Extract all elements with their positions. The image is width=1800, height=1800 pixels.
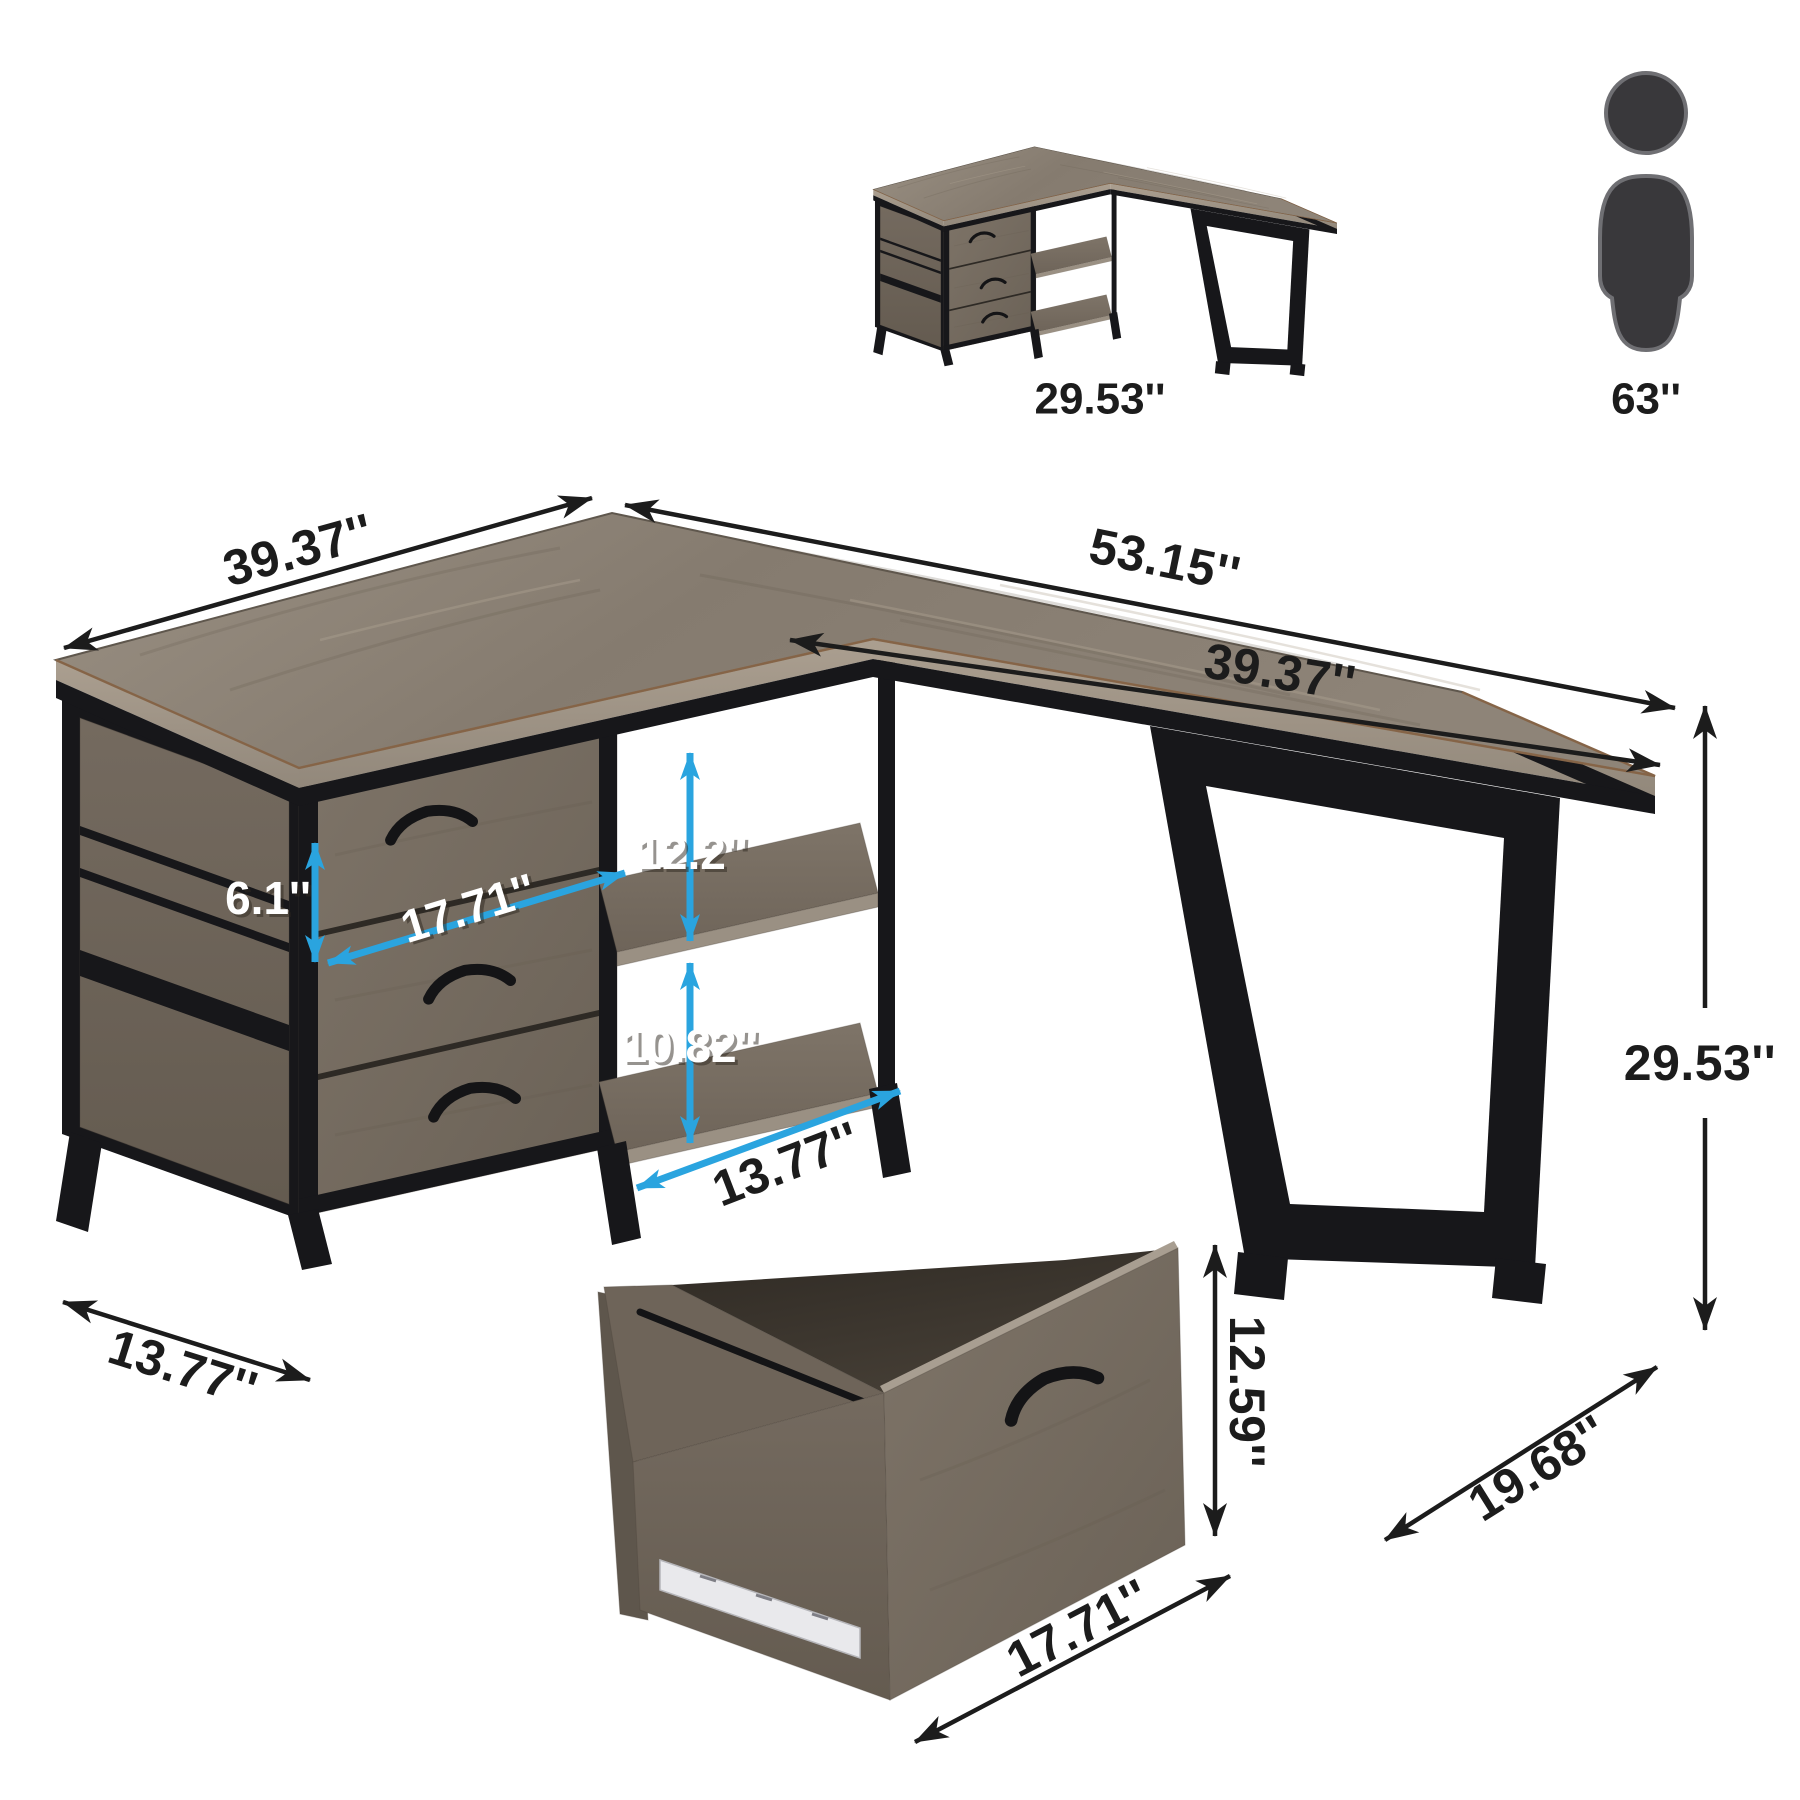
- thumbnail-desk-height-label: 29.53'': [1034, 375, 1165, 424]
- dim-label-leg-depth: 19.68'': [1459, 1404, 1618, 1532]
- dim-label-total-length: 53.15'': [1085, 517, 1246, 602]
- product-dimension-diagram: 29.53'' 63'' 39.37'' 53.15'' 39.37'': [0, 0, 1800, 1800]
- dim-label-top-drawer-height-group: 6.1'' 6.1'': [225, 872, 314, 927]
- person-height-label: 63'': [1611, 375, 1681, 424]
- dim-label-upper-shelf-clearance-group: 12.2'' 12.2'': [636, 827, 750, 882]
- diagram-canvas: 29.53'' 63'' 39.37'' 53.15'' 39.37'': [0, 0, 1800, 1800]
- person-body: [1600, 176, 1692, 350]
- desk-thumbnail: [873, 147, 1337, 376]
- person-icon: [1600, 73, 1692, 350]
- dim-label-upper-shelf-clearance: 12.2'': [636, 827, 747, 879]
- dim-label-lower-shelf-clearance: 10.82'': [622, 1020, 759, 1072]
- person-head: [1606, 73, 1686, 153]
- dim-label-desk-height: 29.53'': [1624, 1035, 1776, 1091]
- dim-label-cabinet-floor-depth: 13.77'': [102, 1318, 264, 1417]
- dim-label-top-drawer-height: 6.1'': [225, 872, 311, 924]
- dim-label-lower-shelf-clearance-group: 10.82'' 10.82'': [622, 1020, 762, 1075]
- dim-label-file-drawer-height: 12.59'': [1219, 1316, 1275, 1468]
